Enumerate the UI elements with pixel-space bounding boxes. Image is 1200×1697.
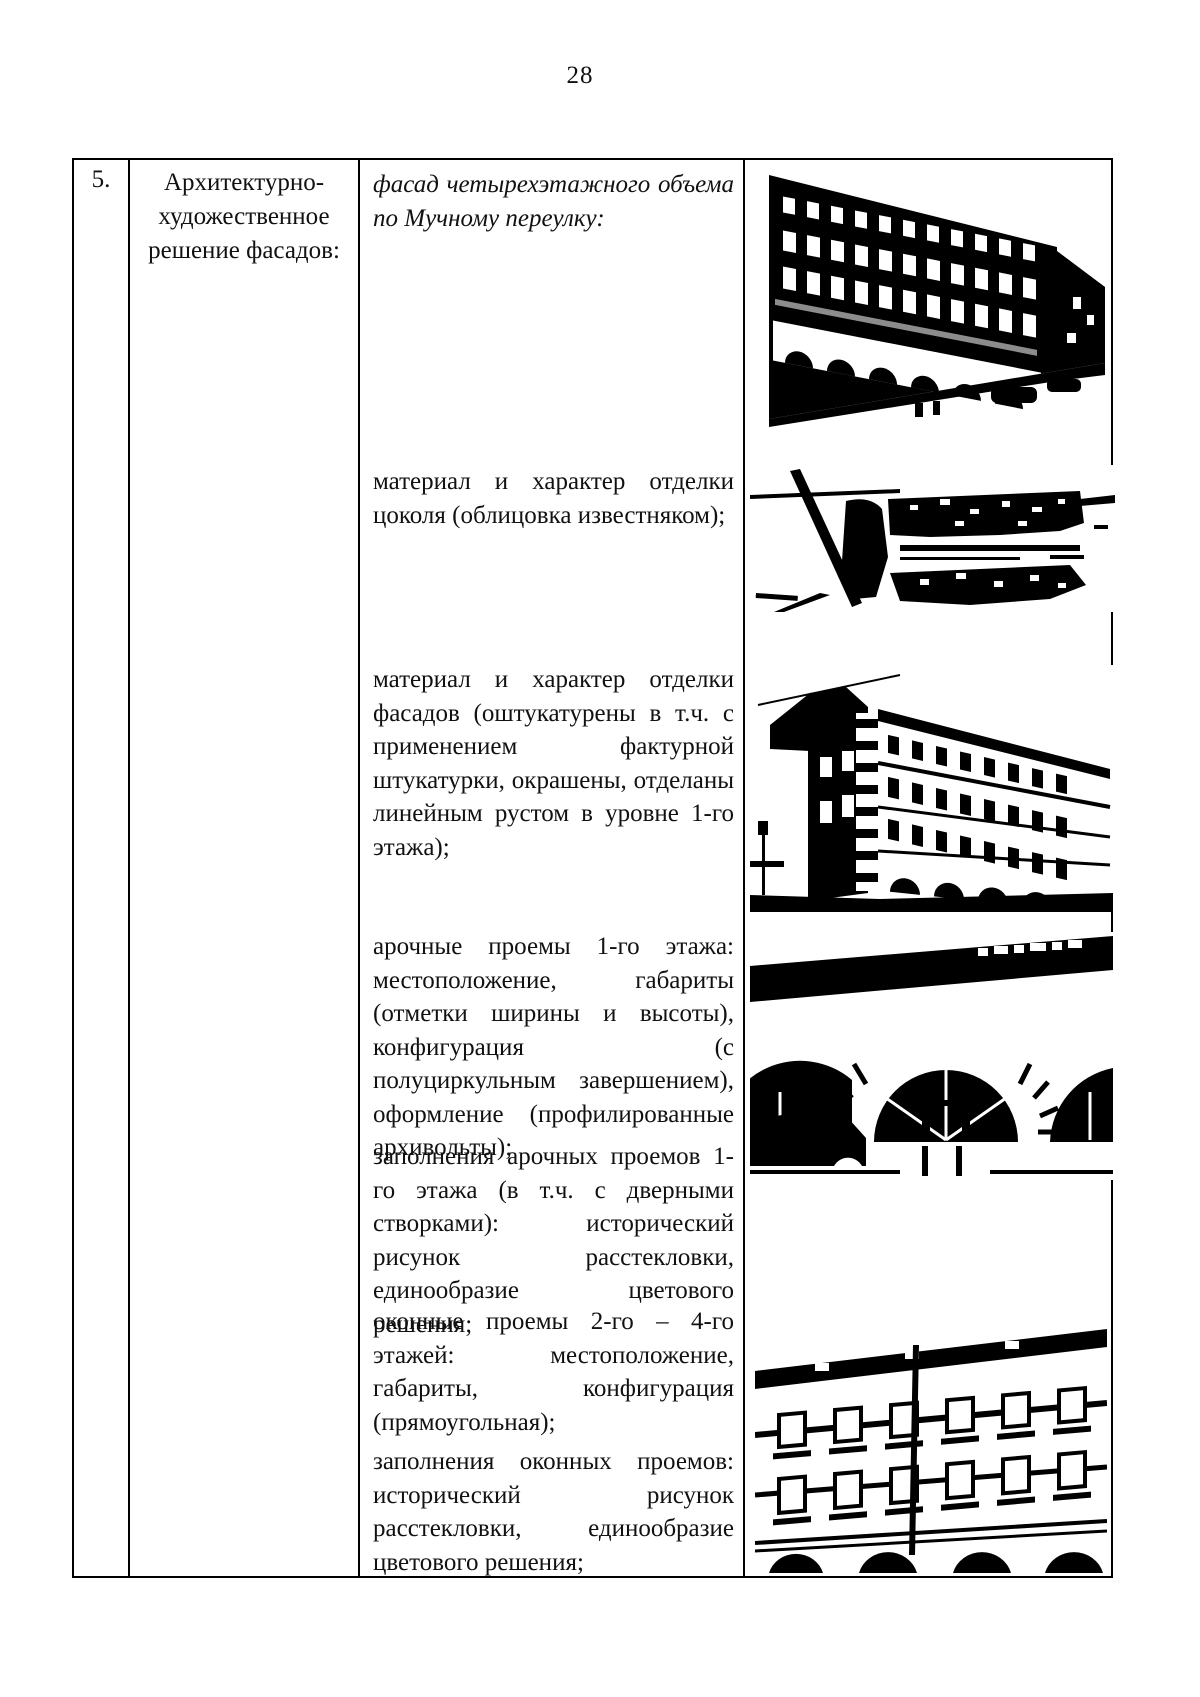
building-facade-image [755, 165, 1107, 440]
description-window-openings: оконные проемы 2-го – 4-го этажей: место… [373, 1305, 734, 1439]
building-facade-photo [755, 165, 1107, 440]
description-plinth: материал и характер отделки цоколя (обли… [373, 465, 734, 532]
description-facade-heading: фасад четырехэтажного объема по Мучному … [373, 168, 734, 235]
row-title: Архитектурно-художественное решение фаса… [130, 160, 358, 268]
document-table: 5. Архитектурно-художественное решение ф… [72, 158, 1113, 1578]
description-window-infill: заполнения оконных проемов: исторический… [373, 1445, 734, 1579]
description-arched-openings: арочные проемы 1-го этажа: местоположени… [373, 930, 734, 1165]
column-row-title: Архитектурно-художественное решение фаса… [130, 160, 360, 1576]
corner-facade-photo [750, 665, 1113, 912]
upper-windows-photo [755, 1285, 1107, 1573]
column-row-number: 5. [74, 160, 130, 1576]
column-descriptions: фасад четырехэтажного объема по Мучному … [360, 160, 745, 1576]
upper-windows-image [755, 1285, 1107, 1573]
arched-openings-photo [750, 932, 1113, 1180]
column-photos [745, 160, 1115, 1576]
page-number: 28 [0, 62, 1160, 90]
plinth-closeup-photo [750, 465, 1115, 612]
corner-facade-image [750, 665, 1113, 912]
description-facade-finish: материал и характер отделки фасадов (ошт… [373, 663, 734, 864]
arched-openings-image [750, 932, 1113, 1180]
row-number: 5. [74, 160, 128, 194]
plinth-closeup-image [750, 465, 1115, 612]
